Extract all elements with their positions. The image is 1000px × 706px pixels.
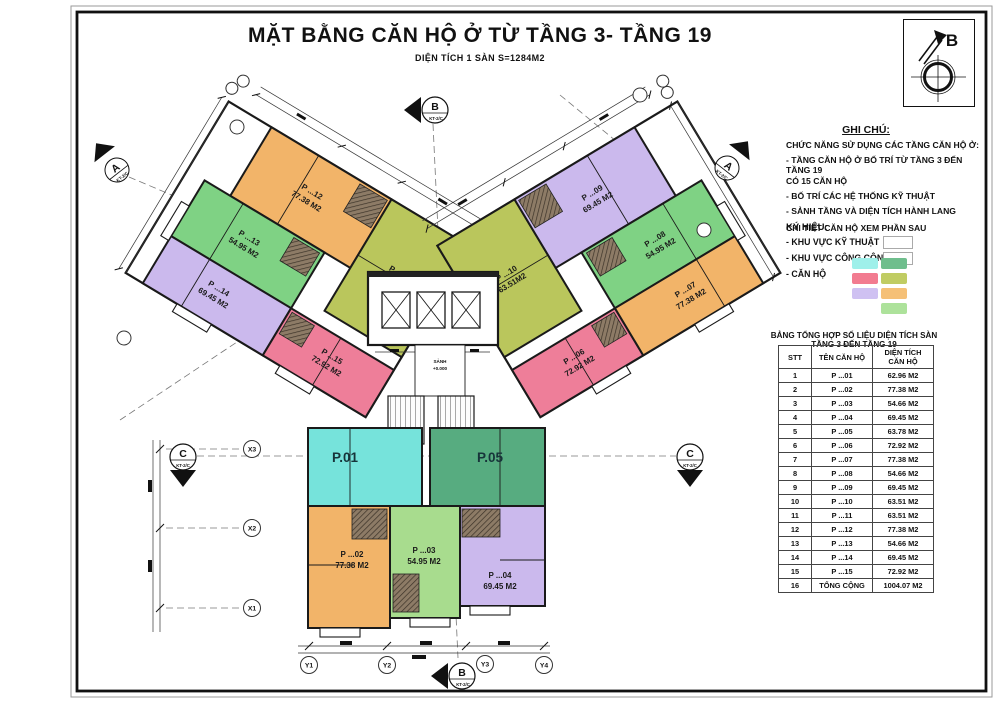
table-row: 7P ...0777.38 M2 (779, 453, 934, 467)
header-name: TÊN CĂN HỘ (812, 346, 873, 369)
section-marker-b-bottom: B KT-2/C (431, 663, 475, 689)
axis-bubble (697, 223, 711, 237)
svg-text:KT-2/C: KT-2/C (176, 463, 190, 468)
apartment-02-name: P ...02 (341, 550, 365, 559)
header-area-line2: CĂN HỘ (875, 357, 931, 366)
table-row: 8P ...0854.66 M2 (779, 467, 934, 481)
wing-south: P.01 P.05 P ...02 77.38 M2 P ...03 54.95… (308, 428, 545, 637)
table-row: 15P ...1572.92 M2 (779, 565, 934, 579)
legend-apartment-label: - CĂN HỘ (786, 269, 826, 279)
section-marker-c-left: C KT-2/C (170, 444, 196, 487)
axis-label-y4: Y4 (540, 663, 549, 670)
table-row: 3P ...0354.66 M2 (779, 397, 934, 411)
legend-heading: KÝ HIỆU: (786, 222, 986, 233)
elevator-shaft (452, 292, 480, 328)
svg-text:C: C (179, 448, 187, 460)
axis-bubble (633, 88, 647, 102)
header-area-line1: DIỆN TÍCH (875, 348, 931, 357)
north-arrow-icon: B (904, 20, 974, 105)
table-row: 10P ...1063.51 M2 (779, 495, 934, 509)
table-total-row: 16TỔNG CỘNG1004.07 M2 (779, 579, 934, 593)
axis-bubble (230, 120, 244, 134)
table-row: 12P ...1277.38 M2 (779, 523, 934, 537)
apartment-04-area: 69.45 M2 (483, 582, 517, 591)
wc-zone (462, 509, 500, 537)
legend-technical-swatch (883, 236, 913, 249)
axis-label-x1: X1 (248, 606, 257, 613)
elevator-shaft (382, 292, 410, 328)
apartment-04-name: P ...04 (489, 571, 513, 580)
table-row: 1P ...0162.96 M2 (779, 369, 934, 383)
color-swatch-cyan (852, 258, 878, 269)
table-row: 6P ...0672.92 M2 (779, 439, 934, 453)
notes-heading: GHI CHÚ: (786, 124, 946, 136)
svg-text:C: C (686, 448, 694, 460)
svg-text:KT-2/C: KT-2/C (683, 463, 697, 468)
section-marker-c-right: C KT-2/C (677, 444, 703, 487)
table-row: 4P ...0469.45 M2 (779, 411, 934, 425)
table-row: 9P ...0969.45 M2 (779, 481, 934, 495)
axis-label-x3: X3 (248, 447, 257, 454)
section-marker-a-left: A KT-2/C (86, 135, 135, 187)
wc-zone (393, 574, 419, 612)
dimension-bottom: Y1 Y2 Y3 Y4 (298, 641, 553, 674)
note-line: - TẦNG CĂN HỘ Ở BỐ TRÍ TỪ TẦNG 3 ĐẾN TẦN… (786, 155, 986, 176)
wc-zone (352, 509, 387, 539)
svg-text:KT-2/C: KT-2/C (429, 116, 443, 121)
axis-label-x2: X2 (248, 526, 257, 533)
color-swatch-lavender (852, 288, 878, 299)
area-summary-table: STT TÊN CĂN HỘ DIỆN TÍCH CĂN HỘ 1P ...01… (778, 345, 934, 593)
note-line: CÓ 15 CĂN HỘ (786, 176, 986, 187)
legend-item-technical: - KHU VỰC KỸ THUẬT (786, 237, 986, 249)
drawing-sheet: P ...12 77.38 M2 P ...11 63.51M2 P ...13… (0, 0, 1000, 706)
apartment-02-area: 77.38 M2 (335, 561, 369, 570)
apartment-01-name: P.01 (332, 450, 359, 465)
axis-label-y3: Y3 (481, 662, 490, 669)
apartment-color-swatches (852, 258, 907, 314)
svg-text:B: B (431, 101, 439, 113)
dimension-left: X3 X2 X1 (148, 440, 261, 632)
apartment-05 (430, 428, 545, 506)
title-block: MẶT BẰNG CĂN HỘ Ở TỪ TẦNG 3- TẦNG 19 DIỆ… (180, 24, 780, 63)
axis-bubble (117, 331, 131, 345)
elevator-shaft (417, 292, 445, 328)
north-arrow-box: B (903, 19, 975, 107)
svg-text:KT-2/C: KT-2/C (456, 682, 470, 687)
apartment-05-name: P.05 (477, 450, 504, 465)
axis-label-y1: Y1 (305, 663, 314, 670)
axis-label-y2: Y2 (383, 663, 392, 670)
table-header-row: STT TÊN CĂN HỘ DIỆN TÍCH CĂN HỘ (779, 346, 934, 369)
legend-panel: KÝ HIỆU: - KHU VỰC KỸ THUẬT - KHU VỰC CÔ… (786, 222, 986, 281)
lobby-label: SẢNH (433, 358, 447, 364)
lobby-level: +0.000 (433, 366, 448, 371)
note-line: CHỨC NĂNG SỬ DỤNG CÁC TẦNG CĂN HỘ Ở: (786, 140, 986, 151)
balcony (410, 618, 450, 627)
note-line: - SẢNH TẦNG VÀ DIỆN TÍCH HÀNH LANG (786, 206, 986, 217)
north-letter: B (946, 31, 958, 50)
section-marker-b-top: B KT-2/C (404, 97, 448, 123)
apartment-03-area: 54.95 M2 (407, 557, 441, 566)
apartment-03-name: P ...03 (413, 546, 437, 555)
svg-text:B: B (458, 667, 466, 679)
table-row: 14P ...1469.45 M2 (779, 551, 934, 565)
notes-panel: GHI CHÚ: CHỨC NĂNG SỬ DỤNG CÁC TẦNG CĂN … (786, 124, 986, 234)
note-line: - BỐ TRÍ CÁC HỆ THỐNG KỸ THUẬT (786, 191, 986, 202)
header-area: DIỆN TÍCH CĂN HỘ (873, 346, 934, 369)
balcony (470, 606, 510, 615)
color-swatch-pink (852, 273, 878, 284)
color-swatch-lightgreen (881, 303, 907, 314)
page-subtitle: DIỆN TÍCH 1 SÀN S=1284M2 (180, 53, 780, 63)
color-swatch-orange (881, 288, 907, 299)
legend-technical-label: - KHU VỰC KỸ THUẬT (786, 237, 879, 247)
wing-northeast: P ...09 69.45 M2 P ...10 63.51M2 P ...08… (419, 73, 789, 427)
table-row: 2P ...0277.38 M2 (779, 383, 934, 397)
color-swatch-olive (881, 273, 907, 284)
color-swatch-green (881, 258, 907, 269)
header-stt: STT (779, 346, 812, 369)
table-row: 5P ...0563.78 M2 (779, 425, 934, 439)
table-row: 13P ...1354.66 M2 (779, 537, 934, 551)
apartment-01 (308, 428, 422, 506)
table-row: 11P ...1163.51 M2 (779, 509, 934, 523)
page-title: MẶT BẰNG CĂN HỘ Ở TỪ TẦNG 3- TẦNG 19 (180, 24, 780, 48)
balcony (320, 628, 360, 637)
